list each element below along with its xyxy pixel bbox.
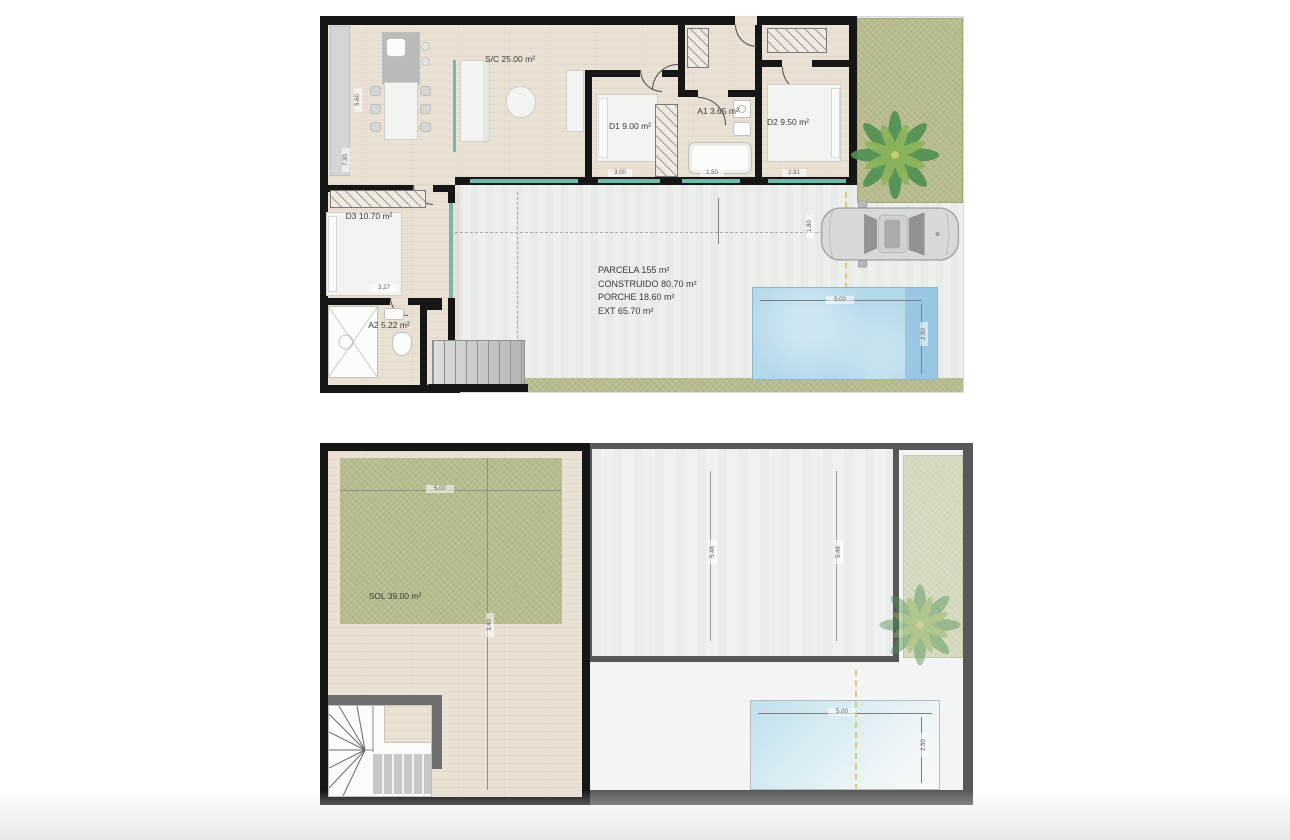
car-illustration (818, 198, 962, 270)
dining-chair (370, 104, 381, 114)
palm-tree-illustration (847, 107, 943, 203)
area-summary: PARCELA 155 m² CONSTRUIDO 80.70 m² PORCH… (598, 264, 728, 318)
sofa (460, 60, 490, 142)
sideboard-living (453, 60, 456, 152)
ground-floor-plan: 5.00 2.50 1.80 (320, 16, 964, 393)
closet-hall (687, 28, 709, 68)
tower-wall-top (320, 443, 590, 451)
dining-chair (420, 122, 431, 132)
boundary-wall-top (899, 443, 973, 450)
axis-line-yellow-roof (855, 670, 857, 790)
tv-sideboard (566, 70, 584, 132)
dim-label: 5.00 (426, 485, 454, 493)
wall-d3-a2-a (328, 298, 390, 305)
room-label-d3: D3 10.70 m² (338, 211, 400, 222)
toilet-a2 (392, 332, 412, 356)
window-living (470, 179, 578, 183)
window-d3 (449, 203, 453, 298)
room-label-d2: D2 9.50 m² (758, 117, 818, 128)
wall-top-b (757, 16, 857, 25)
dim-label: 5.00 (828, 708, 856, 716)
wall-a2-corner (420, 298, 442, 310)
window-d2 (768, 179, 846, 183)
summary-line: PARCELA 155 m² (598, 264, 728, 278)
stairwell-wall-top (328, 695, 434, 705)
dim-label: 3.00 (608, 169, 632, 177)
wall-d1-left (585, 70, 592, 177)
stairwell-wall-right (432, 695, 442, 769)
dim-label: 5.48 (709, 540, 717, 564)
dining-table (384, 82, 418, 140)
wardrobe-d1 (655, 104, 678, 177)
summary-line: EXT 65.70 m² (598, 305, 728, 319)
dining-chair (370, 122, 381, 132)
wall-wing-right-low (448, 298, 455, 340)
wall-d1-top-a (592, 70, 640, 77)
wall-a2-right (420, 298, 427, 393)
wall-hall-bottom-a (680, 90, 698, 97)
wall-d2-top-b (812, 60, 857, 67)
summary-line: PORCHE 18.60 m² (598, 291, 728, 305)
wall-a1-d2 (755, 25, 762, 177)
dining-chair (420, 86, 431, 96)
kitchen-sink (386, 38, 406, 57)
dim-label: 1.50 (700, 169, 724, 177)
room-label-a2: A2 5.22 m² (360, 320, 418, 331)
window-d1 (598, 179, 660, 183)
shower-a2-cross (328, 306, 378, 378)
window-a1 (682, 179, 740, 183)
wall-left (320, 16, 328, 393)
dining-chair (420, 104, 431, 114)
roof-plan: 5.48 5.48 5.00 3.40 (320, 443, 975, 808)
dim-label: 5.60 (354, 88, 362, 112)
room-label-d1: D1 9.00 m² (600, 121, 660, 132)
room-label-living: S/C 25.00 m² (470, 54, 550, 65)
wall-d2-top-a (762, 60, 782, 67)
dim-label: 2.50 (920, 322, 928, 346)
summary-line: CONSTRUIDO 80.70 m² (598, 278, 728, 292)
dim-label: 3.40 (486, 613, 494, 637)
dim-label: 7.30 (342, 148, 350, 172)
basin-a1 (733, 122, 751, 136)
page-bottom-fade (0, 790, 1290, 840)
dim-label: 2.50 (920, 733, 928, 757)
wardrobe-d3 (330, 190, 426, 208)
wall-wing-right-stub (448, 185, 455, 203)
dim-label: 5.00 (826, 296, 854, 304)
boundary-wall-right (963, 443, 973, 805)
dim-label: 1.80 (806, 214, 814, 238)
coffee-table (506, 86, 536, 118)
stairs-edge (428, 384, 528, 392)
tower-wall-left (320, 443, 328, 805)
bed-d3-pillows (328, 216, 337, 292)
car-dim-line (718, 198, 719, 244)
wall-hall-left (678, 25, 685, 97)
garden-grass-strip (495, 378, 963, 392)
dim-label: 2.91 (782, 169, 806, 177)
dining-chair (370, 86, 381, 96)
bed-d2-pillows (831, 88, 840, 158)
room-label-a1: A1 3.65 m² (688, 106, 748, 117)
tower-wall-right (582, 443, 590, 805)
room-label-solarium: SOL 39.00 m² (350, 591, 440, 602)
dim-label: 3.27 (372, 284, 396, 292)
kitchen-stool (421, 42, 430, 51)
wall-top-a (320, 16, 735, 25)
stairs-ground (432, 340, 525, 386)
dim-label: 5.48 (835, 540, 843, 564)
wardrobe-d2 (767, 28, 827, 53)
basin-a2 (384, 308, 404, 320)
floor-plan-page: { "colors": { "wall": "#161616", "roof_w… (0, 0, 1290, 840)
kitchen-stool (421, 57, 430, 66)
main-roof (586, 443, 899, 662)
stairs-roof (329, 706, 431, 796)
palm-tree-illustration-faded (876, 581, 964, 669)
